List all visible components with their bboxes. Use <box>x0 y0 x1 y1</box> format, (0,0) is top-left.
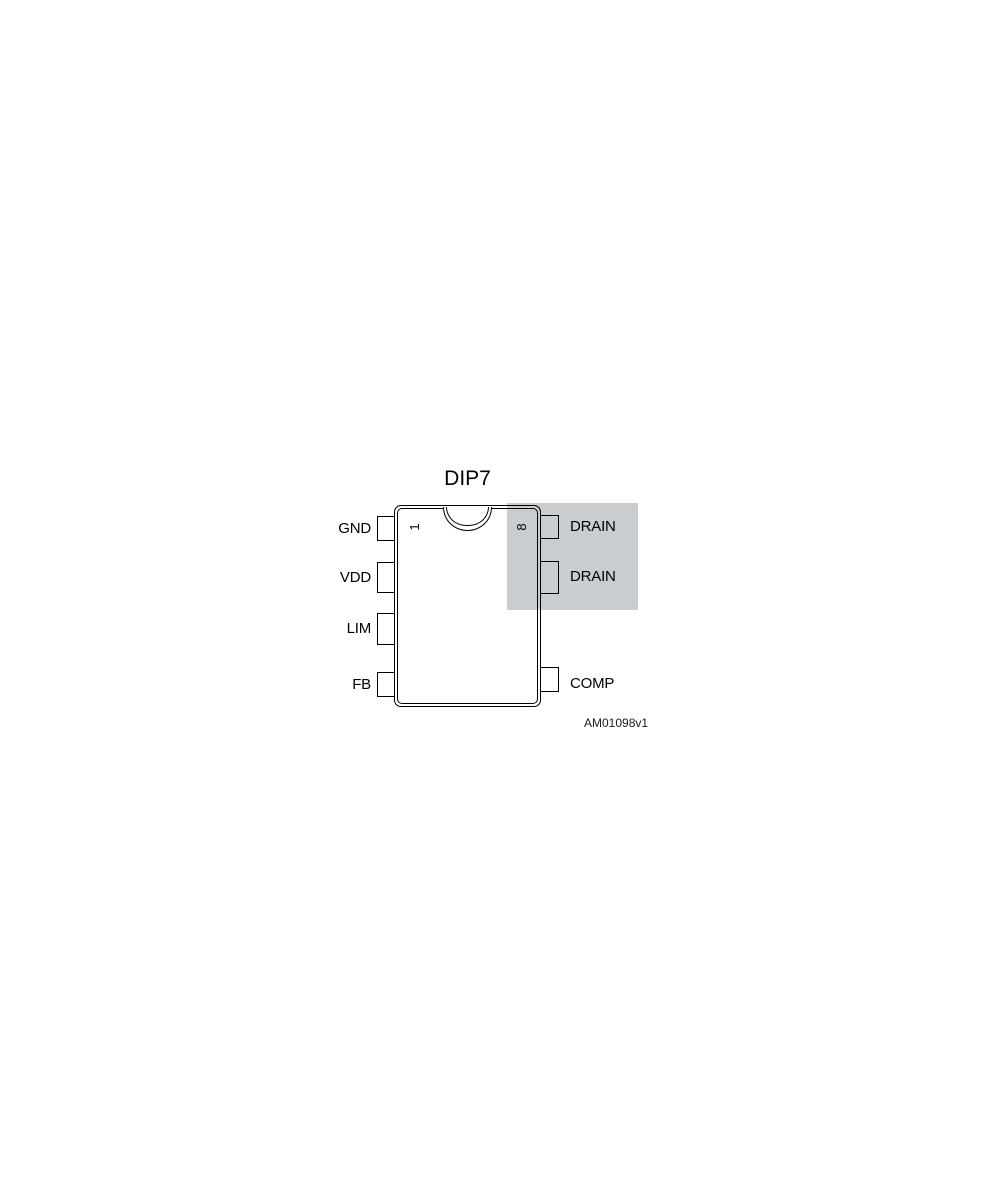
orientation-notch-inner-outline <box>446 507 489 526</box>
pin-label-drain-8: DRAIN <box>570 519 616 535</box>
pin-number-1: 1 <box>404 517 424 537</box>
pin-label-drain-7: DRAIN <box>570 569 616 585</box>
pin-label-comp: COMP <box>570 676 614 692</box>
pin-label-fb: FB <box>352 677 371 693</box>
ic-package-inner-outline <box>397 508 538 704</box>
pin-label-gnd: GND <box>338 521 371 537</box>
pin-label-lim: LIM <box>347 621 371 637</box>
pin-label-vdd: VDD <box>340 570 371 586</box>
pin-number-8: 8 <box>511 517 531 537</box>
pinout-figure: DIP7 1 8 GND VDD LIM FB DRAIN DRAIN COMP… <box>0 0 1000 1200</box>
package-title: DIP7 <box>394 467 541 491</box>
figure-reference: AM01098v1 <box>584 716 648 730</box>
